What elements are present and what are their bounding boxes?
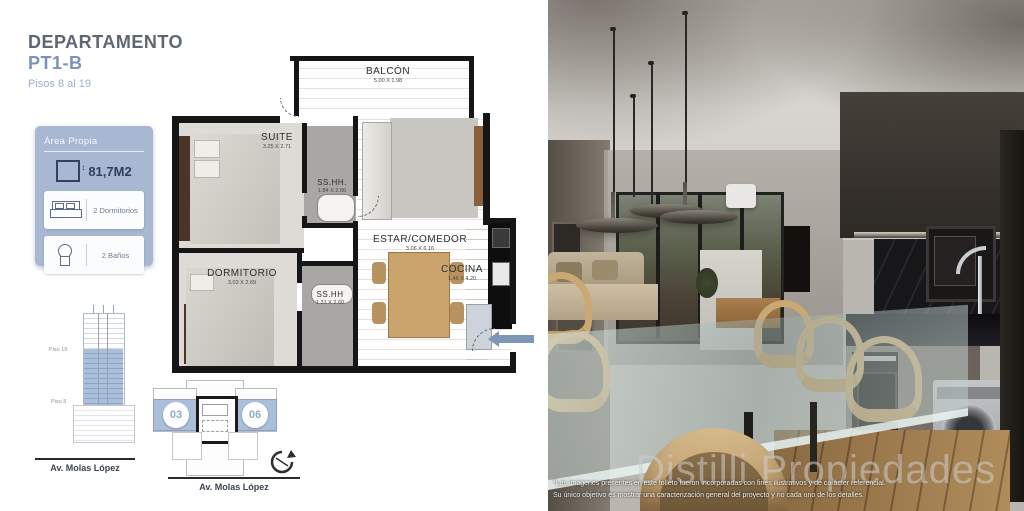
wall <box>483 113 490 225</box>
chair-plan <box>372 262 386 284</box>
antenna-line <box>103 305 104 313</box>
bathtub-top <box>317 194 355 222</box>
wall <box>353 116 358 196</box>
wall <box>297 311 302 368</box>
wall <box>172 116 280 123</box>
room-label-balcon: BALCÓN 5.00 X 1.98 <box>366 66 410 84</box>
bed-icon <box>44 201 86 219</box>
wall <box>302 223 356 228</box>
room-label-living: ESTAR/COMEDOR 3.06 X 6.16 <box>373 234 467 252</box>
wall <box>302 123 307 193</box>
wall <box>290 56 474 61</box>
wall <box>372 366 516 373</box>
room-label-bathroom-bottom: SS.HH 1.31 X 2.60 <box>316 290 344 306</box>
throw-pillow <box>592 260 618 280</box>
wall <box>179 248 304 253</box>
area-row: ↕ 81,7M2 <box>44 160 144 182</box>
wall <box>172 116 179 373</box>
area-info-panel: Área Propia ↕ 81,7M2 2 Dormitorios 2 Bañ… <box>35 126 153 266</box>
building-elevation-diagram: Piso 19 Piso 8 <box>45 305 155 455</box>
bathroom-bottom-floor <box>302 266 356 368</box>
room-label-suite: SUITE 3.25 X 2.71 <box>261 132 293 150</box>
wall <box>510 218 516 324</box>
kitchen-sink <box>492 262 510 286</box>
kitchen-upper-cabinets <box>840 92 1024 238</box>
suite-pillow <box>194 140 220 158</box>
lamp-cord <box>613 30 615 215</box>
bathrooms-row: 2 Baños <box>44 236 144 274</box>
highlighted-floors <box>84 349 123 405</box>
unit-number-right: 06 <box>242 402 268 428</box>
footprint-lower-left <box>172 432 202 460</box>
door-arc <box>280 98 299 117</box>
core-detail <box>202 420 228 432</box>
page-title: DEPARTAMENTO PT1-B Pisos 8 al 19 <box>28 32 183 90</box>
street-label-siteplan: Av. Molas López <box>168 482 300 492</box>
entry-arrow-icon <box>498 335 534 343</box>
info-panel-header: Área Propia <box>44 136 144 152</box>
ac-unit <box>726 184 756 208</box>
lamp-stem <box>611 192 615 220</box>
antenna-line <box>113 305 114 313</box>
north-compass-icon <box>266 446 298 478</box>
pendant-lamp-shade <box>660 210 738 224</box>
entry-arrow-head <box>488 331 499 347</box>
room-label-bathroom-top: SS.HH. 1.84 X 2.86 <box>317 178 347 194</box>
disclaimer-line1: *Las imágenes presentes en este folleto … <box>553 480 886 487</box>
street-line <box>35 458 135 460</box>
room-label-kitchen: COCINA 1.46 X 4.20 <box>441 264 483 282</box>
core-detail <box>202 404 228 416</box>
antenna-line <box>93 305 94 313</box>
cooktop <box>492 228 510 248</box>
suite-pillow <box>194 160 220 178</box>
tower-base <box>73 405 135 443</box>
interior-render-photo: Distilli Propiedades *Las imágenes prese… <box>548 0 1024 511</box>
area-value: 81,7M2 <box>88 164 131 179</box>
lamp-cord <box>633 97 635 197</box>
wall <box>353 221 358 369</box>
bedrooms-label: 2 Dormitorios <box>87 206 144 215</box>
plant <box>696 268 718 298</box>
footprint-lower-right <box>228 432 258 460</box>
toilet-icon <box>44 244 86 266</box>
wall <box>297 253 302 283</box>
bottom-floor-label: Piso 8 <box>51 399 66 405</box>
tv <box>784 226 810 292</box>
room-label-bedroom: DORMITORIO 3.03 X 2.69 <box>207 268 277 286</box>
chair-plan <box>372 302 386 324</box>
top-floor-label: Piso 19 <box>49 347 67 353</box>
chair-plan <box>450 302 464 324</box>
title-unit-code: PT1-B <box>28 53 183 74</box>
wall <box>302 261 356 266</box>
suite-bed-headboard <box>179 136 190 241</box>
bedrooms-row: 2 Dormitorios <box>44 191 144 229</box>
brochure-page: DEPARTAMENTO PT1-B Pisos 8 al 19 Área Pr… <box>0 0 1024 511</box>
lamp-cord <box>685 14 687 206</box>
area-measure-icon: ↕ <box>56 160 80 182</box>
title-floors-range: Pisos 8 al 19 <box>28 78 183 90</box>
title-departamento: DEPARTAMENTO <box>28 32 183 53</box>
street-label-elevation: Av. Molas López <box>25 463 145 473</box>
living-rug <box>390 118 478 218</box>
pendant-lamp-shade <box>576 218 658 233</box>
bathrooms-label: 2 Baños <box>87 251 144 260</box>
lamp-cord <box>651 64 653 204</box>
wall <box>172 366 372 373</box>
disclaimer-line2: Su único objetivo es mostrar una caracte… <box>553 492 864 499</box>
unit-number-left: 03 <box>163 402 189 428</box>
wall <box>469 56 474 118</box>
